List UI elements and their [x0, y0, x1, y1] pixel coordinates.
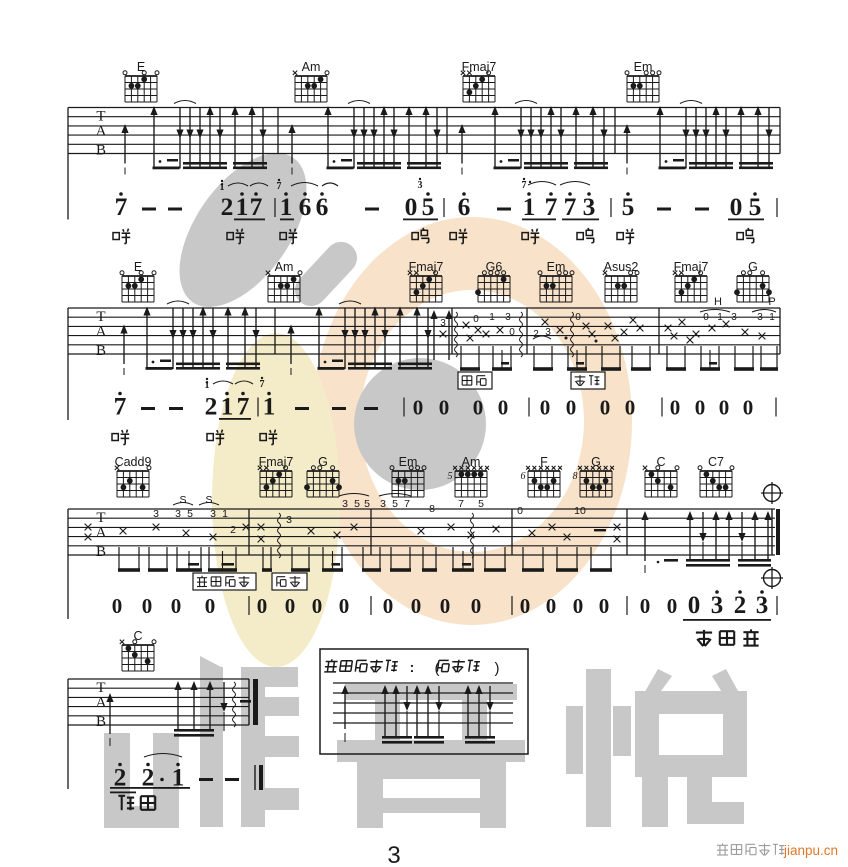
svg-text:S: S — [205, 494, 212, 506]
svg-text:0: 0 — [440, 594, 451, 618]
svg-text:3: 3 — [583, 192, 596, 221]
svg-text:7: 7 — [458, 498, 464, 510]
svg-text:1: 1 — [221, 392, 234, 421]
svg-text:3: 3 — [175, 508, 181, 520]
svg-text:B: B — [96, 714, 106, 730]
svg-text:3: 3 — [711, 592, 724, 619]
svg-text:0: 0 — [600, 396, 611, 420]
svg-text:5: 5 — [478, 498, 484, 510]
svg-text:1: 1 — [717, 312, 723, 323]
svg-text:1: 1 — [222, 508, 228, 520]
svg-text:0: 0 — [573, 594, 584, 618]
svg-text:8: 8 — [573, 471, 578, 482]
svg-text:0: 0 — [546, 594, 557, 618]
svg-text:3: 3 — [286, 514, 292, 526]
svg-text:0: 0 — [719, 396, 730, 420]
svg-text:T: T — [96, 680, 105, 696]
svg-text:7: 7 — [250, 192, 263, 221]
svg-text:3: 3 — [210, 508, 216, 520]
svg-text:jianpu.cn: jianpu.cn — [783, 843, 838, 858]
svg-text:1: 1 — [263, 392, 276, 421]
svg-text:Asus2: Asus2 — [604, 260, 639, 274]
svg-text:0: 0 — [566, 396, 577, 420]
svg-text:E: E — [134, 260, 142, 274]
svg-text:Em: Em — [547, 260, 566, 274]
svg-text:8: 8 — [429, 503, 435, 515]
svg-text:A: A — [96, 124, 107, 140]
svg-text:3: 3 — [387, 842, 400, 867]
svg-text:1: 1 — [489, 312, 495, 323]
svg-text:0: 0 — [413, 396, 424, 420]
svg-text:0: 0 — [670, 396, 681, 420]
svg-text:0: 0 — [339, 594, 350, 618]
svg-text:G6: G6 — [486, 260, 503, 274]
svg-text:3: 3 — [418, 180, 423, 191]
svg-text:0: 0 — [312, 594, 323, 618]
svg-text:B: B — [96, 544, 106, 560]
svg-text:E: E — [137, 60, 145, 74]
svg-text:0: 0 — [625, 396, 636, 420]
svg-text:Em: Em — [634, 60, 653, 74]
svg-text:7: 7 — [277, 181, 282, 192]
svg-text:0: 0 — [688, 592, 701, 619]
svg-text:Fmaj7: Fmaj7 — [259, 455, 294, 469]
svg-text:5: 5 — [622, 192, 635, 221]
svg-text:0: 0 — [498, 396, 509, 420]
svg-text:B: B — [96, 343, 106, 359]
svg-text:0: 0 — [695, 396, 706, 420]
svg-text:0: 0 — [517, 505, 523, 517]
svg-text:Fmaj7: Fmaj7 — [409, 260, 444, 274]
svg-text:3: 3 — [757, 312, 763, 323]
svg-text:6: 6 — [521, 471, 526, 482]
svg-text:5: 5 — [448, 471, 453, 482]
svg-text:5: 5 — [187, 508, 193, 520]
svg-text:6: 6 — [316, 192, 329, 221]
svg-text:5: 5 — [354, 498, 360, 510]
svg-text:2: 2 — [734, 592, 747, 619]
svg-text:3: 3 — [153, 508, 159, 520]
svg-text::: : — [410, 659, 415, 675]
svg-text:Am: Am — [275, 260, 294, 274]
svg-text:C: C — [656, 455, 665, 469]
svg-text:5: 5 — [364, 498, 370, 510]
svg-text:C7: C7 — [708, 455, 724, 469]
svg-text:0: 0 — [540, 396, 551, 420]
svg-text:1: 1 — [523, 192, 536, 221]
svg-text:S: S — [179, 494, 186, 506]
svg-text:3: 3 — [731, 312, 737, 323]
svg-text:0: 0 — [471, 594, 482, 618]
svg-text:A: A — [96, 695, 107, 711]
svg-text:5: 5 — [422, 192, 435, 221]
svg-text:7: 7 — [115, 192, 128, 221]
svg-text:Em: Em — [399, 455, 418, 469]
svg-text:0: 0 — [599, 594, 610, 618]
svg-text:7: 7 — [522, 180, 527, 191]
svg-text:Fmaj7: Fmaj7 — [674, 260, 709, 274]
svg-text:G: G — [318, 455, 328, 469]
svg-text:7: 7 — [404, 498, 410, 510]
svg-text:Am: Am — [462, 455, 481, 469]
svg-text:T: T — [96, 510, 105, 526]
svg-text:Cadd9: Cadd9 — [115, 455, 152, 469]
svg-text:0: 0 — [640, 594, 651, 618]
svg-text:3: 3 — [505, 312, 511, 323]
svg-text:Am: Am — [302, 60, 321, 74]
svg-text:7: 7 — [114, 392, 127, 421]
svg-text:0: 0 — [667, 594, 678, 618]
svg-text:3: 3 — [756, 592, 769, 619]
svg-text:7: 7 — [564, 192, 577, 221]
svg-text:0: 0 — [205, 594, 216, 618]
svg-text:0: 0 — [411, 594, 422, 618]
svg-text:6: 6 — [299, 192, 312, 221]
svg-text:P: P — [768, 296, 775, 308]
svg-text:0: 0 — [257, 594, 268, 618]
svg-text:2: 2 — [205, 392, 218, 421]
svg-text:Fmaj7: Fmaj7 — [462, 60, 497, 74]
svg-text:A: A — [96, 324, 107, 340]
svg-text:7: 7 — [237, 392, 250, 421]
svg-text:B: B — [96, 143, 106, 159]
svg-text:): ) — [495, 660, 500, 677]
svg-text:0: 0 — [112, 594, 123, 618]
svg-text:0: 0 — [142, 594, 153, 618]
svg-text:1: 1 — [280, 192, 293, 221]
svg-text:0: 0 — [405, 192, 418, 221]
svg-text:5: 5 — [749, 192, 762, 221]
svg-text:0: 0 — [575, 312, 581, 323]
svg-text:10: 10 — [574, 505, 586, 517]
svg-text:0: 0 — [730, 192, 743, 221]
svg-text:0: 0 — [703, 312, 709, 323]
svg-text:0: 0 — [285, 594, 296, 618]
svg-text:2: 2 — [230, 524, 236, 536]
svg-text:3: 3 — [380, 498, 386, 510]
svg-text:0: 0 — [171, 594, 182, 618]
svg-text:5: 5 — [392, 498, 398, 510]
svg-text:T: T — [96, 109, 105, 125]
svg-text:0: 0 — [473, 396, 484, 420]
svg-text:7: 7 — [260, 379, 265, 390]
svg-text:1: 1 — [236, 192, 249, 221]
svg-text:7: 7 — [545, 192, 558, 221]
svg-text:H: H — [714, 296, 722, 308]
svg-text:0: 0 — [743, 396, 754, 420]
svg-text:0: 0 — [473, 314, 479, 325]
svg-text:1: 1 — [769, 312, 775, 323]
svg-text:T: T — [96, 309, 105, 325]
svg-text:A: A — [96, 525, 107, 541]
svg-text:C: C — [133, 629, 142, 643]
svg-text:G: G — [748, 260, 758, 274]
svg-text:0: 0 — [439, 396, 450, 420]
svg-text:0: 0 — [383, 594, 394, 618]
svg-text:3: 3 — [440, 318, 446, 329]
svg-text:0: 0 — [509, 327, 515, 338]
svg-text:3: 3 — [342, 498, 348, 510]
svg-text:0: 0 — [520, 594, 531, 618]
svg-text:6: 6 — [458, 192, 471, 221]
svg-text:2: 2 — [221, 192, 234, 221]
